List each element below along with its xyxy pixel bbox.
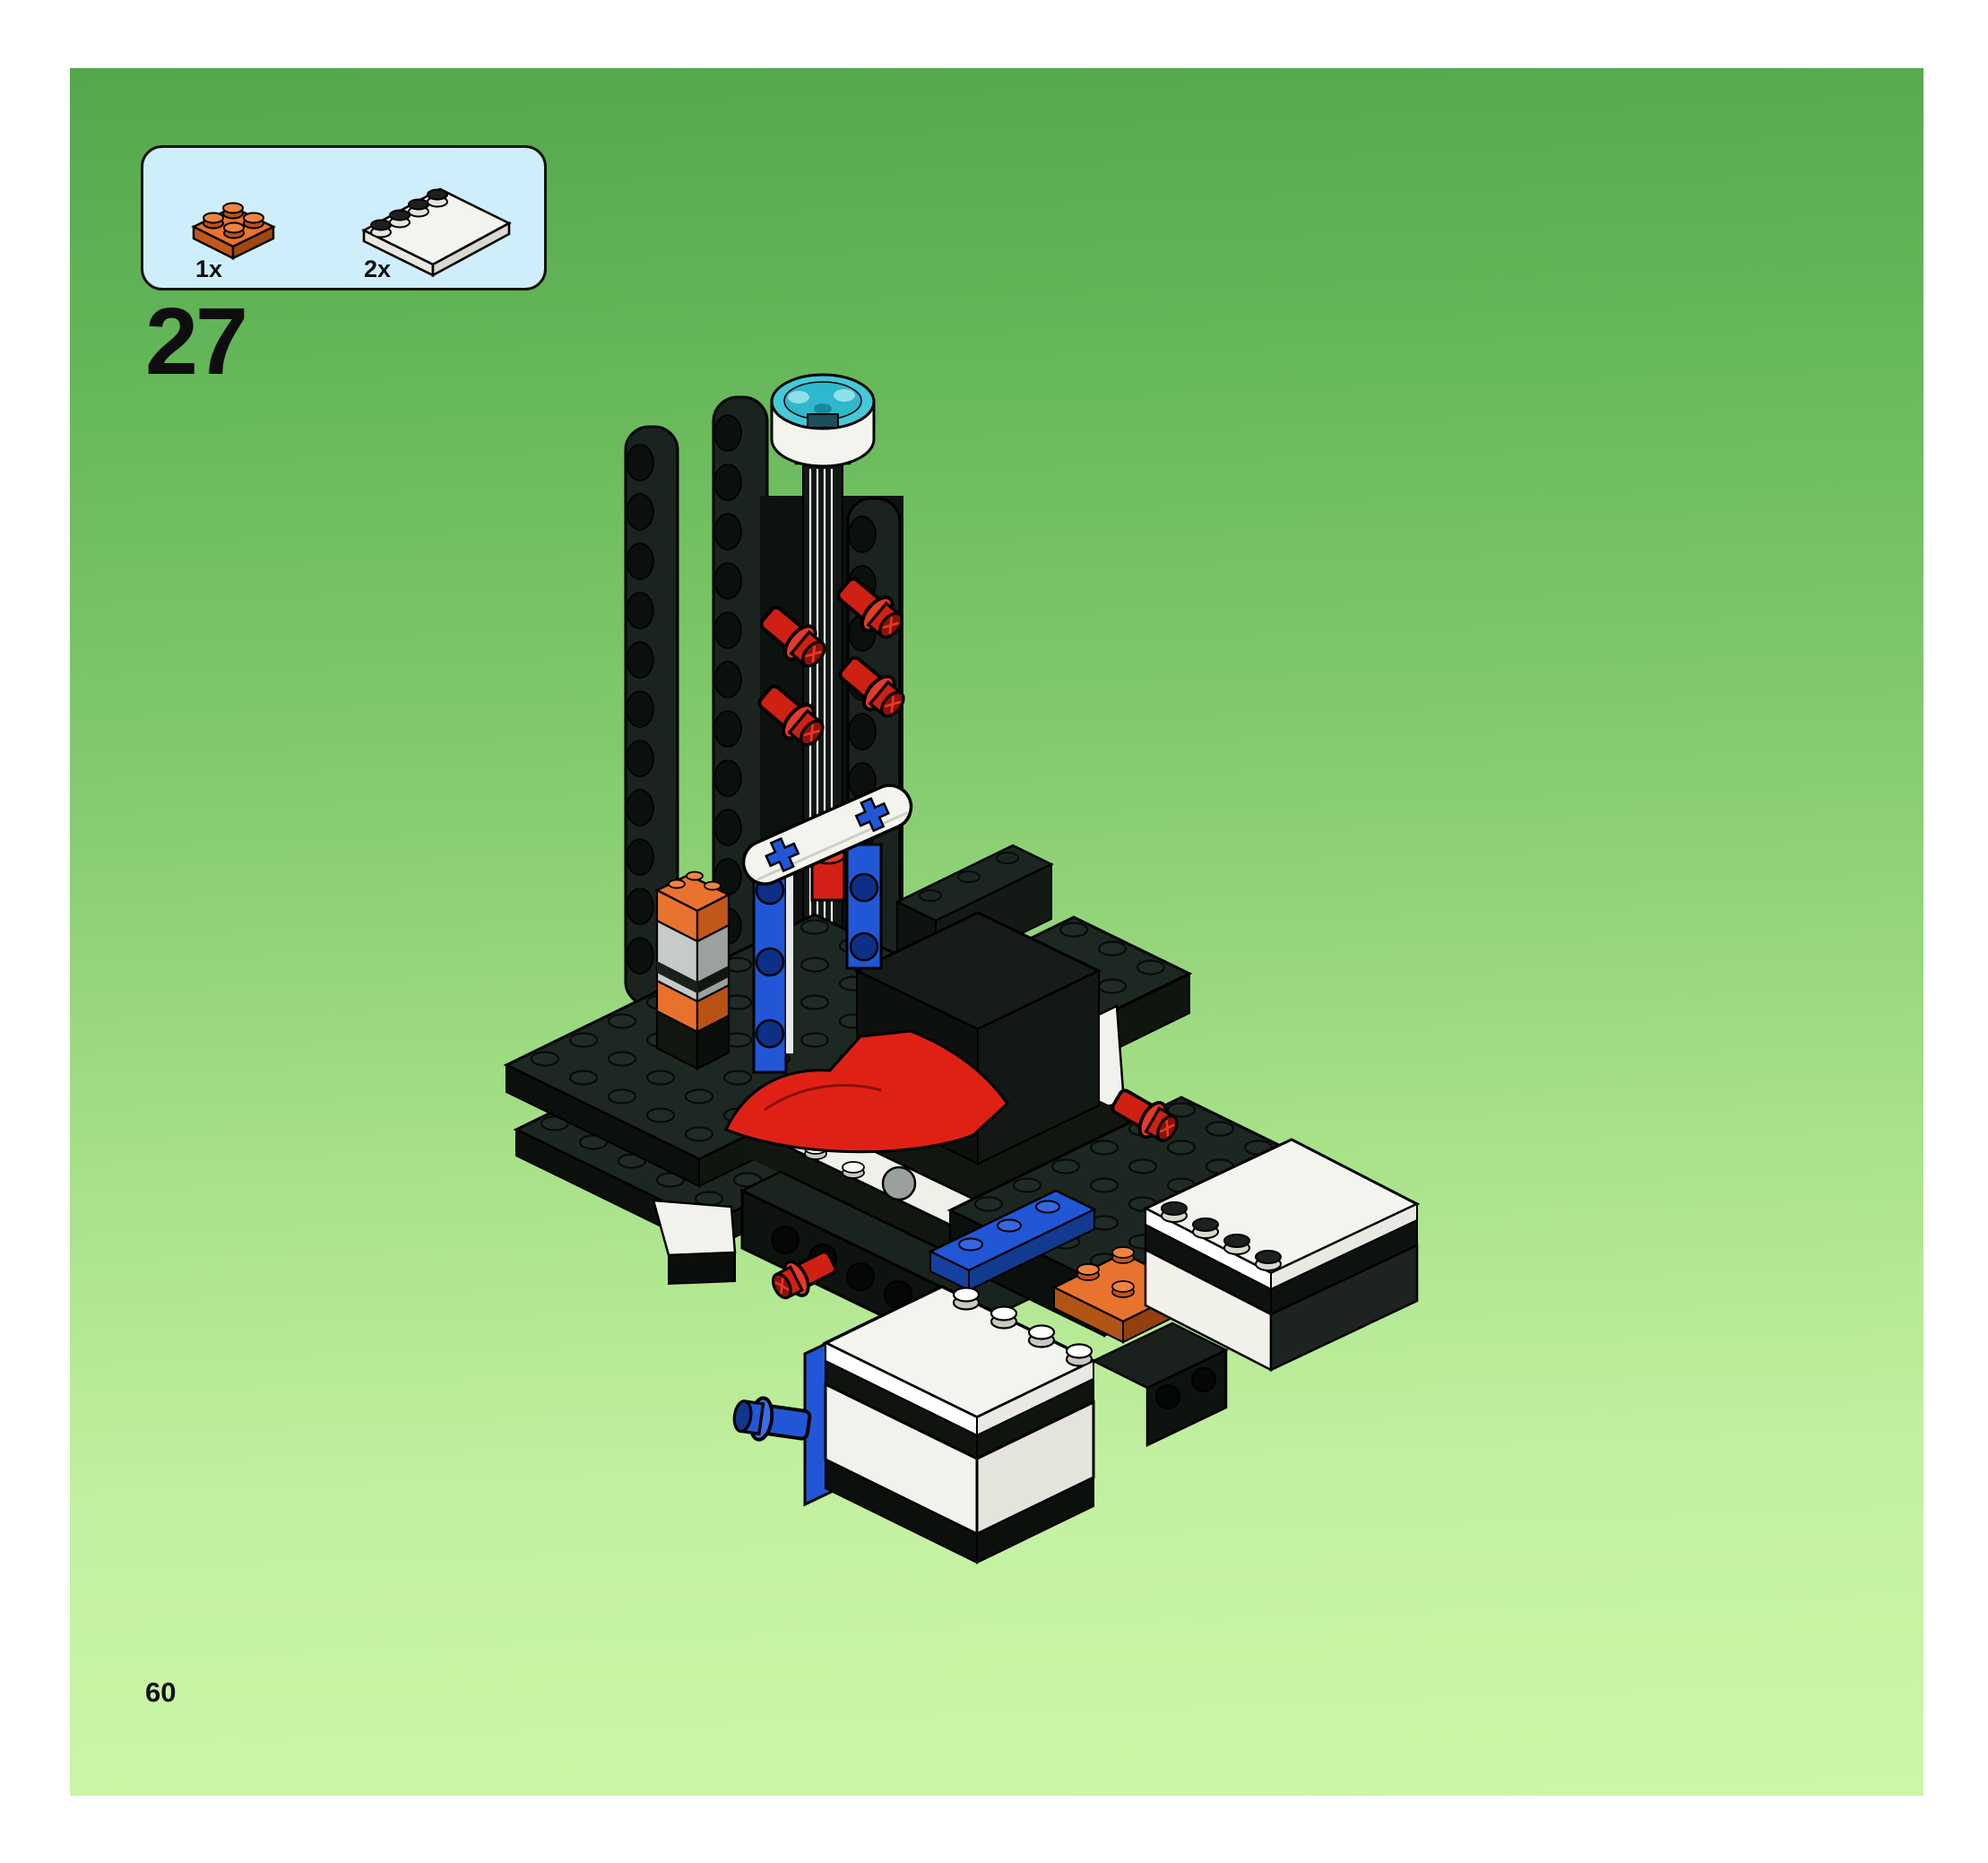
page-background: 1x 2x 27 xyxy=(70,68,1923,1796)
radar-dome xyxy=(772,375,874,466)
part-quantity-label: 2x xyxy=(364,256,391,283)
orange-gray-pump-stack xyxy=(657,872,729,1070)
parts-callout-box: 1x 2x xyxy=(141,145,547,290)
blue-technic-brick-right xyxy=(847,845,881,968)
instruction-sheet: 1x 2x 27 xyxy=(0,0,1988,1863)
orange-2x2-plate-icon xyxy=(186,191,281,264)
page-number: 60 xyxy=(145,1677,176,1709)
model-illustration xyxy=(446,339,1486,1594)
part-quantity-label: 1x xyxy=(195,256,222,283)
white-brick-under-left xyxy=(653,1200,735,1284)
blue-pin xyxy=(731,1394,811,1446)
step-number: 27 xyxy=(145,294,246,389)
